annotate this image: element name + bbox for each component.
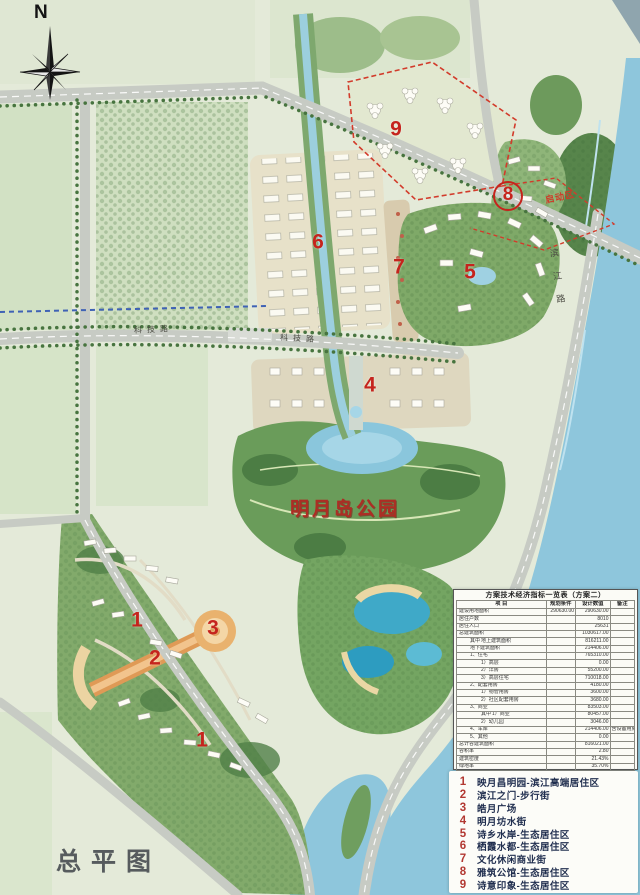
indicator-condition-cell: [546, 697, 575, 704]
indicator-value-cell: 290630.00: [576, 608, 610, 615]
indicator-col-header: 备注: [610, 601, 635, 609]
indicator-condition-cell: [546, 734, 575, 741]
indicator-condition-cell: [546, 653, 575, 660]
indicator-condition-cell: [546, 756, 575, 763]
indicator-item-label: 4、车库: [470, 726, 488, 732]
indicator-item-label: 1）高层: [481, 660, 499, 666]
legend-item: 7文化休闲商业街: [449, 853, 638, 866]
indicator-condition-cell: [546, 748, 575, 755]
indicator-value-cell: 3046.00: [576, 719, 610, 726]
indicator-table-header-row: 项 目规划条件设计数值备注: [457, 601, 635, 609]
indicator-group-label: 其中: [470, 639, 481, 645]
indicator-remark-cell: [610, 653, 635, 660]
indicator-remark-cell: [610, 741, 635, 748]
indicator-item-label: 居住人口: [459, 623, 479, 629]
indicator-col-header: 规划条件: [546, 601, 575, 609]
indicator-item-cell: 1）高层: [457, 660, 547, 667]
indicator-row: 2）洋房55200.00: [457, 667, 635, 674]
legend-item: 5诗乡水岸-生态居住区: [449, 827, 638, 840]
indicator-remark-cell: [610, 734, 635, 741]
indicator-value-cell: 816211.00: [576, 638, 610, 645]
indicator-remark-cell: [610, 756, 635, 763]
indicator-row: 2、配套用房4180.00: [457, 682, 635, 689]
legend-item-number: 4: [449, 815, 477, 827]
indicator-row: 5、其他0.00: [457, 734, 635, 741]
indicator-row: 4、车库214406.00含设备用房: [457, 726, 635, 733]
indicator-row: 绿地率35.70%: [457, 763, 635, 770]
indicator-value-cell: 21.43%: [576, 756, 610, 763]
indicator-table-panel: 方案技术经济指标一览表（方案二） 项 目规划条件设计数值备注 建设用地面积290…: [453, 589, 638, 770]
legend-item: 9诗意印象-生态居住区: [449, 878, 638, 891]
indicator-row: 其中1）商业80457.00: [457, 712, 635, 719]
indicator-condition-cell: [546, 645, 575, 652]
indicator-condition-cell: [546, 667, 575, 674]
indicator-remark-cell: [610, 748, 635, 755]
indicator-item-cell: 3）高层住宅: [457, 675, 547, 682]
indicator-item-cell: 1）物管用房: [457, 689, 547, 696]
indicator-item-cell: 总计容建筑面积: [457, 741, 547, 748]
indicator-value-cell: 816021.00: [576, 741, 610, 748]
indicator-value-cell: 83503.00: [576, 704, 610, 711]
indicator-value-cell: 4180.00: [576, 682, 610, 689]
legend-item-label: 诗意印象-生态居住区: [477, 878, 570, 892]
indicator-row: 建筑密度21.43%: [457, 756, 635, 763]
indicator-item-cell: 容积率: [457, 748, 547, 755]
indicator-remark-cell: [610, 763, 635, 770]
indicator-item-label: 1）商业: [492, 712, 510, 718]
indicator-condition-cell: [546, 726, 575, 733]
indicator-item-cell: 总建筑面积: [457, 630, 547, 637]
indicator-remark-cell: [610, 616, 635, 623]
legend-item-number: 7: [449, 853, 477, 865]
indicator-row: 2）社区配套用房3680.00: [457, 697, 635, 704]
indicator-remark-cell: [610, 682, 635, 689]
indicator-item-cell: 其中地上建筑面积: [457, 638, 547, 645]
indicator-item-cell: 5、其他: [457, 734, 547, 741]
indicator-value-cell: 0.00: [576, 734, 610, 741]
indicator-item-cell: 1、住宅: [457, 653, 547, 660]
legend-item-number: 9: [449, 879, 477, 891]
indicator-remark-cell: [610, 667, 635, 674]
indicator-value-cell: 55200.00: [576, 667, 610, 674]
indicator-value-cell: 3600.00: [576, 689, 610, 696]
indicator-item-label: 容积率: [459, 748, 474, 754]
indicator-item-cell: 居住人口: [457, 623, 547, 630]
indicator-value-cell: 214406.00: [576, 645, 610, 652]
indicator-remark-cell: [610, 608, 635, 615]
indicator-remark-cell: [610, 630, 635, 637]
indicator-condition-cell: [546, 741, 575, 748]
indicator-item-label: 居住户数: [459, 616, 479, 622]
indicator-row: 建设用地面积290630.00290630.00: [457, 608, 635, 615]
indicator-item-label: 3）高层住宅: [481, 675, 509, 681]
indicator-condition-cell: [546, 704, 575, 711]
indicator-remark-cell: [610, 623, 635, 630]
indicator-item-label: 建设用地面积: [459, 608, 489, 614]
indicator-row: 居住户数8010: [457, 616, 635, 623]
indicator-item-label: 总建筑面积: [459, 630, 484, 636]
indicator-item-cell: 居住户数: [457, 616, 547, 623]
indicator-item-label: 地下建筑面积: [470, 645, 500, 651]
indicator-item-label: 建筑密度: [459, 756, 479, 762]
legend-item-number: 3: [449, 802, 477, 814]
indicator-row: 1）高层0.00: [457, 660, 635, 667]
indicator-item-label: 2）幼儿园: [481, 719, 504, 725]
indicator-item-label: 2、配套用房: [470, 682, 498, 688]
legend-item: 3皓月广场: [449, 802, 638, 815]
indicator-item-cell: 建筑密度: [457, 756, 547, 763]
indicator-remark-cell: [610, 719, 635, 726]
indicator-item-cell: 地下建筑面积: [457, 645, 547, 652]
indicator-row: 1、住宅765310.00: [457, 653, 635, 660]
indicator-condition-cell: [546, 682, 575, 689]
indicator-row: 1）物管用房3600.00: [457, 689, 635, 696]
indicator-condition-cell: [546, 630, 575, 637]
indicator-remark-cell: [610, 660, 635, 667]
legend-item-number: 1: [449, 776, 477, 788]
indicator-item-label: 2）社区配套用房: [481, 697, 519, 703]
indicator-value-cell: 8010: [576, 616, 610, 623]
legend-item: 6栖霞水都-生态居住区: [449, 840, 638, 853]
indicator-value-cell: 3680.00: [576, 697, 610, 704]
indicator-item-label: 5、其他: [470, 734, 488, 740]
indicator-remark-cell: [610, 675, 635, 682]
indicator-condition-cell: [546, 638, 575, 645]
indicator-condition-cell: [546, 763, 575, 770]
indicator-item-cell: 3、商业: [457, 704, 547, 711]
indicator-remark-cell: [610, 689, 635, 696]
indicator-value-cell: 25631: [576, 623, 610, 630]
indicator-item-label: 3、商业: [470, 704, 488, 710]
indicator-value-cell: 214406.00: [576, 726, 610, 733]
legend-panel: 1映月昌明园-滨江高端居住区2滨江之门-步行街3皓月广场4明月坊水街5诗乡水岸-…: [449, 771, 638, 893]
indicator-remark-cell: [610, 712, 635, 719]
indicator-condition-cell: 290630.00: [546, 608, 575, 615]
indicator-remark-cell: [610, 697, 635, 704]
legend-item: 2滨江之门-步行街: [449, 789, 638, 802]
indicator-condition-cell: [546, 712, 575, 719]
indicator-condition-cell: [546, 689, 575, 696]
indicator-remark-cell: 含设备用房: [610, 726, 635, 733]
legend-item-number: 6: [449, 840, 477, 852]
indicator-value-cell: 35.70%: [576, 763, 610, 770]
indicator-condition-cell: [546, 660, 575, 667]
indicator-row: 2）幼儿园3046.00: [457, 719, 635, 726]
indicator-value-cell: 80457.00: [576, 712, 610, 719]
indicator-condition-cell: [546, 719, 575, 726]
indicator-value-cell: 765310.00: [576, 653, 610, 660]
indicator-col-header: 设计数值: [576, 601, 610, 609]
indicator-table-title: 方案技术经济指标一览表（方案二）: [456, 591, 635, 600]
indicator-item-cell: 绿地率: [457, 763, 547, 770]
indicator-item-label: 1、住宅: [470, 653, 488, 659]
indicator-item-cell: 2）社区配套用房: [457, 697, 547, 704]
indicator-value-cell: 1030617.00: [576, 630, 610, 637]
indicator-remark-cell: [610, 704, 635, 711]
indicator-remark-cell: [610, 638, 635, 645]
indicator-condition-cell: [546, 616, 575, 623]
indicator-item-label: 绿地率: [459, 763, 474, 769]
indicator-item-cell: 2）幼儿园: [457, 719, 547, 726]
masterplan-sheet: N 明月岛公园 启动区 9867541321 科技路科技路滨江路 总平图 方: [0, 0, 640, 895]
indicator-item-cell: 其中1）商业: [457, 712, 547, 719]
legend-item-number: 8: [449, 866, 477, 878]
indicator-row: 总建筑面积1030617.00: [457, 630, 635, 637]
indicator-condition-cell: [546, 623, 575, 630]
legend-item-number: 2: [449, 789, 477, 801]
indicator-row: 3）高层住宅710018.00: [457, 675, 635, 682]
indicator-value-cell: 710018.00: [576, 675, 610, 682]
indicator-row: 容积率2.80: [457, 748, 635, 755]
indicator-item-label: 地上建筑面积: [481, 638, 511, 644]
legend-item: 4明月坊水街: [449, 814, 638, 827]
indicator-item-label: 2）洋房: [481, 667, 499, 673]
indicator-group-label: 其中: [481, 712, 492, 718]
indicator-row: 其中地上建筑面积816211.00: [457, 638, 635, 645]
indicator-row: 地下建筑面积214406.00: [457, 645, 635, 652]
indicator-item-label: 1）物管用房: [481, 689, 509, 695]
indicator-item-cell: 2、配套用房: [457, 682, 547, 689]
indicator-item-label: 总计容建筑面积: [459, 741, 494, 747]
indicator-item-cell: 2）洋房: [457, 667, 547, 674]
indicator-item-cell: 4、车库: [457, 726, 547, 733]
indicator-value-cell: 0.00: [576, 660, 610, 667]
legend-item-number: 5: [449, 828, 477, 840]
indicator-row: 总计容建筑面积816021.00: [457, 741, 635, 748]
legend-list: 1映月昌明园-滨江高端居住区2滨江之门-步行街3皓月广场4明月坊水街5诗乡水岸-…: [449, 776, 638, 891]
legend-item: 8雅筑公馆-生态居住区: [449, 866, 638, 879]
indicator-col-header: 项 目: [457, 601, 547, 609]
indicator-item-cell: 建设用地面积: [457, 608, 547, 615]
legend-item: 1映月昌明园-滨江高端居住区: [449, 776, 638, 789]
indicator-value-cell: 2.80: [576, 748, 610, 755]
indicator-remark-cell: [610, 645, 635, 652]
indicator-row: 3、商业83503.00: [457, 704, 635, 711]
indicator-condition-cell: [546, 675, 575, 682]
indicator-row: 居住人口25631: [457, 623, 635, 630]
